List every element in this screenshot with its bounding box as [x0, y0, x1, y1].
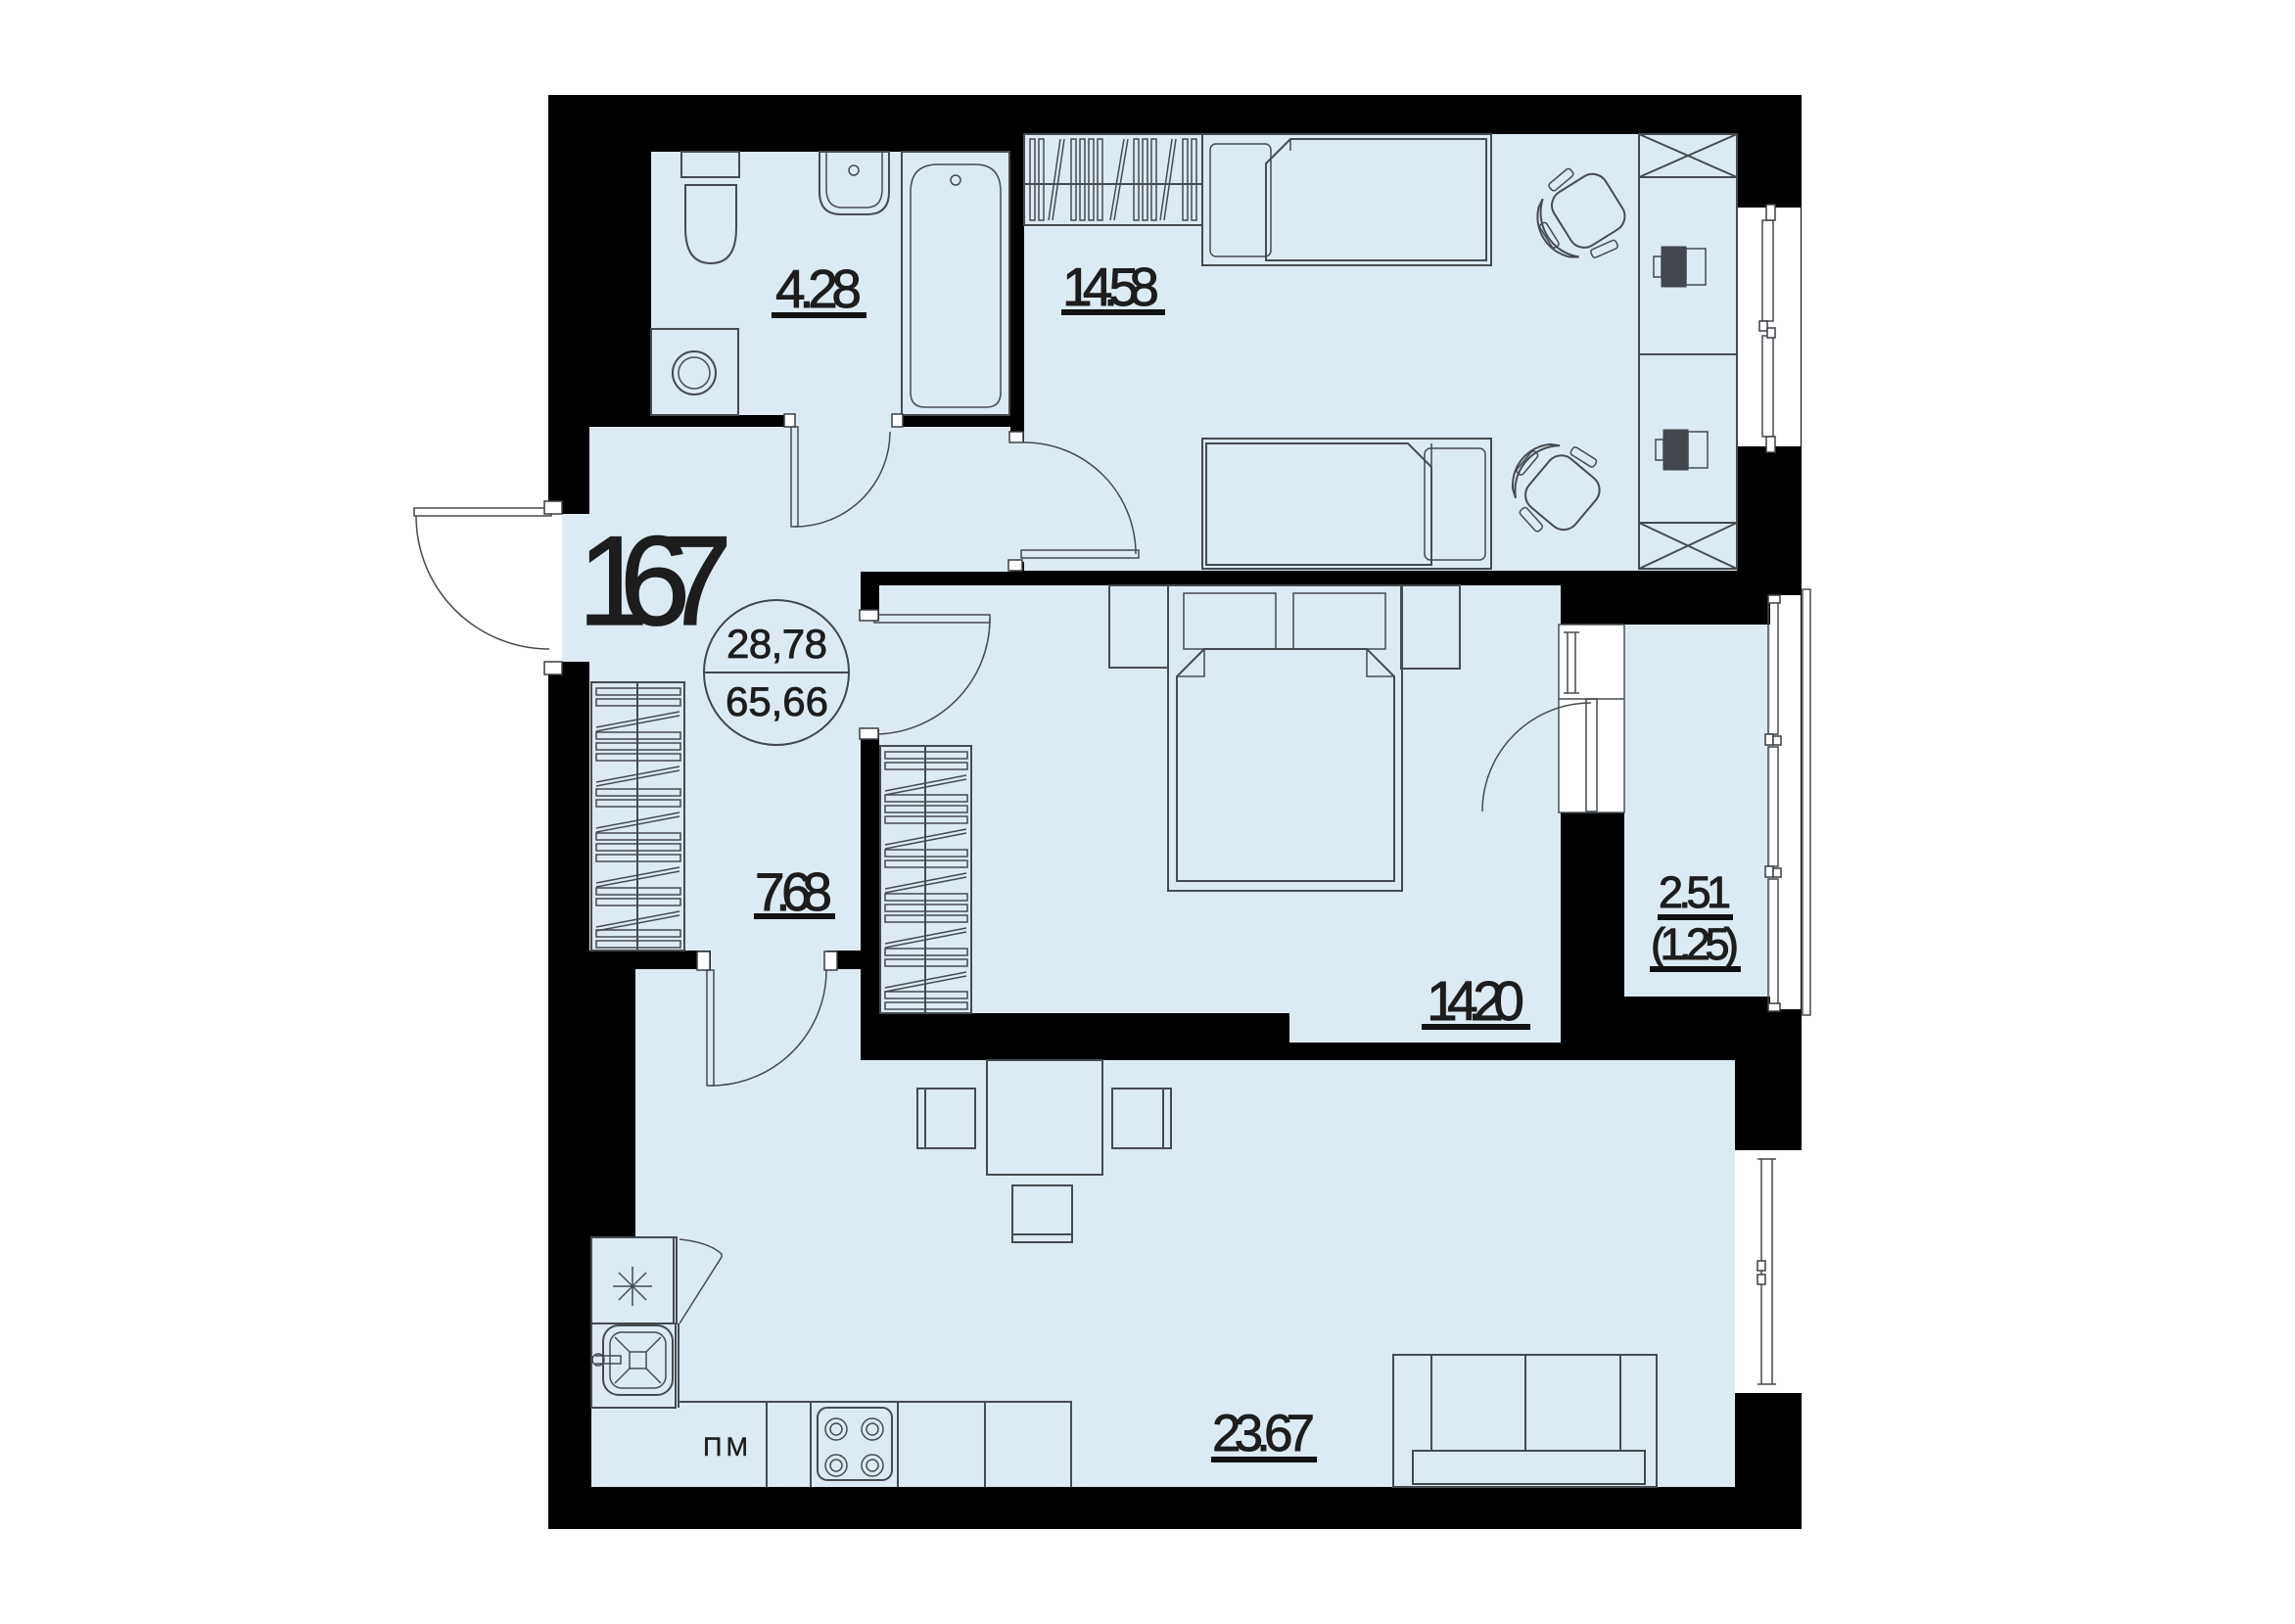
- svg-text:7.68: 7.68: [755, 861, 832, 922]
- svg-text:2.51: 2.51: [1659, 867, 1731, 917]
- svg-text:23.67: 23.67: [1212, 1405, 1315, 1462]
- svg-text:4.28: 4.28: [775, 258, 862, 319]
- svg-text:ПМ: ПМ: [703, 1432, 748, 1462]
- svg-text:14.58: 14.58: [1062, 256, 1159, 317]
- svg-text:28,78: 28,78: [726, 621, 827, 667]
- svg-text:(1.25): (1.25): [1651, 919, 1739, 969]
- svg-text:14.20: 14.20: [1427, 970, 1524, 1033]
- svg-text:167: 167: [578, 509, 732, 652]
- svg-text:65,66: 65,66: [726, 678, 828, 724]
